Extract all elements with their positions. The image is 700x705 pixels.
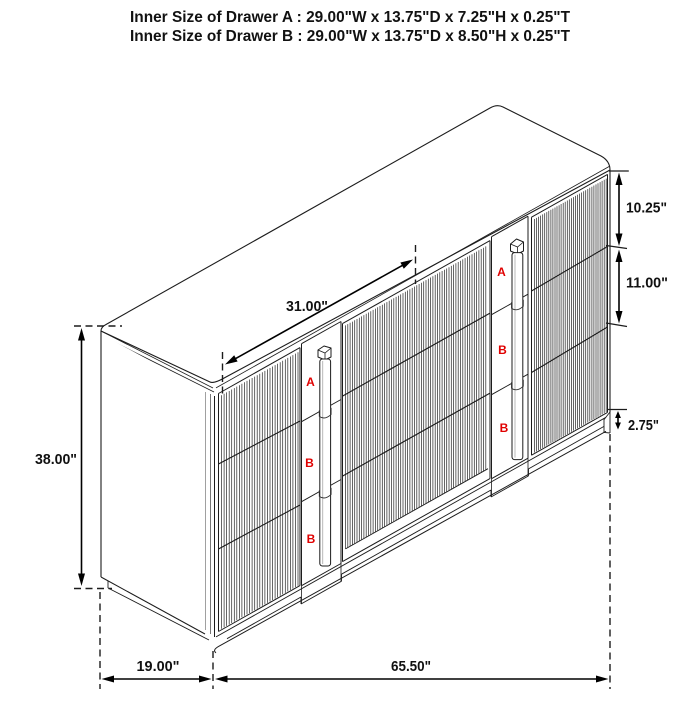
svg-text:B: B (500, 421, 509, 435)
svg-text:B: B (305, 456, 314, 470)
svg-text:Inner Size of Drawer A : 29.00: Inner Size of Drawer A : 29.00"W x 13.75… (130, 9, 571, 26)
svg-text:31.00": 31.00" (286, 299, 328, 315)
svg-text:10.25": 10.25" (626, 201, 667, 217)
svg-text:2.75": 2.75" (628, 418, 659, 434)
svg-text:B: B (307, 532, 316, 546)
svg-text:19.00": 19.00" (137, 659, 180, 675)
svg-text:Inner Size of Drawer B : 29.00: Inner Size of Drawer B : 29.00"W x 13.75… (130, 28, 571, 45)
svg-text:38.00": 38.00" (35, 452, 77, 468)
svg-text:B: B (498, 343, 507, 357)
svg-text:A: A (497, 265, 506, 279)
svg-text:65.50": 65.50" (391, 659, 431, 675)
svg-text:11.00": 11.00" (626, 276, 668, 292)
svg-text:A: A (306, 375, 315, 389)
